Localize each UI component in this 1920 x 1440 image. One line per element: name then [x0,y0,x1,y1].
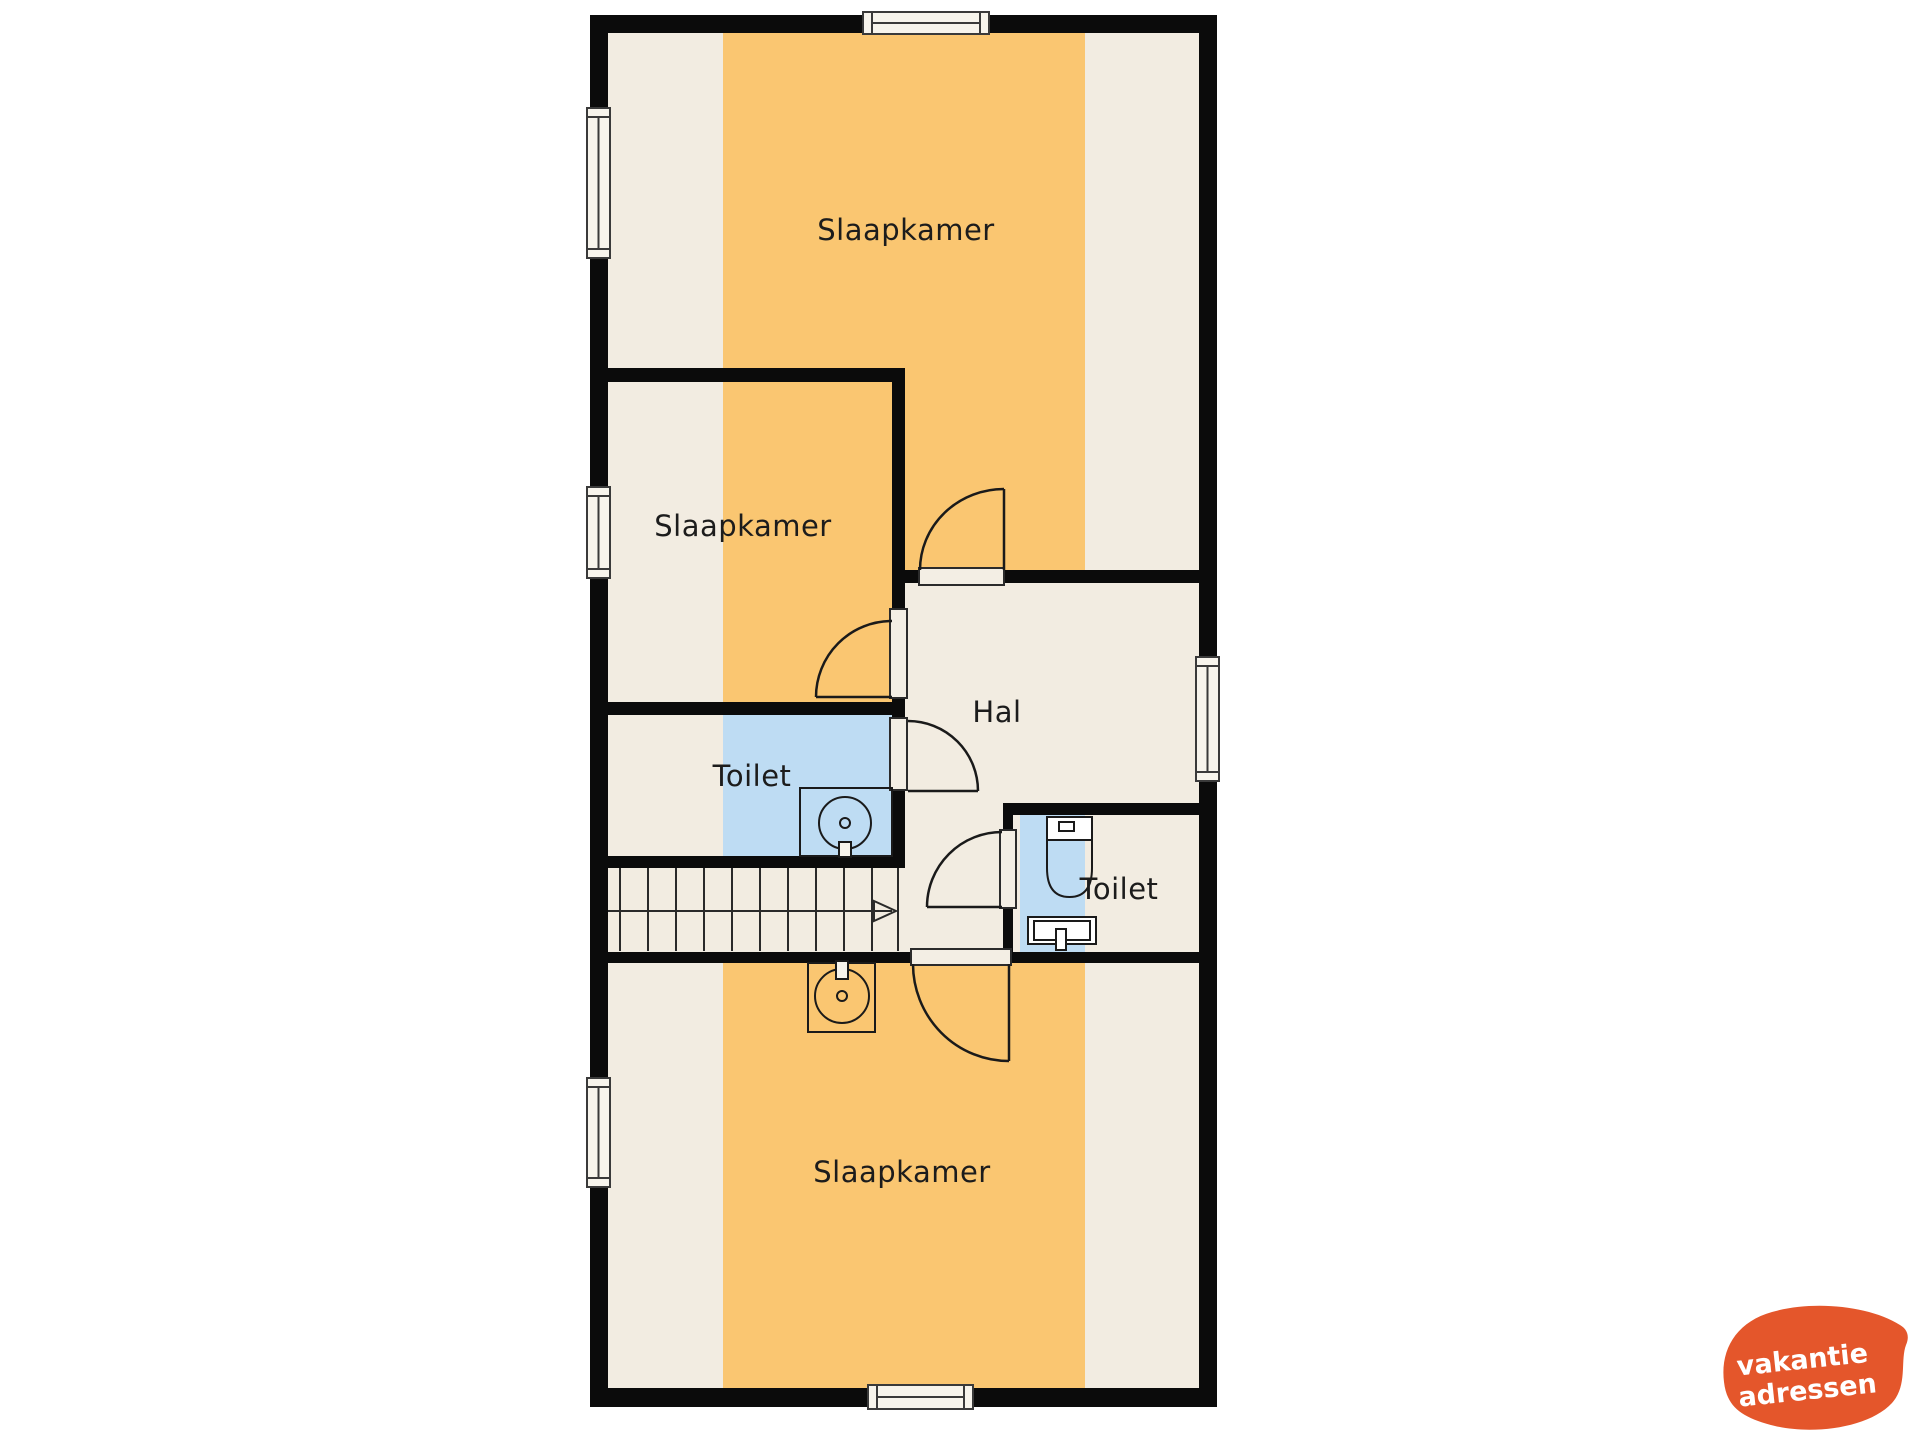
window-left-top [586,107,611,259]
vakantieadressen-logo: vakantie adressen [1714,1298,1914,1433]
room-label-toilet-right: Toilet [1080,872,1159,906]
window-right [1195,656,1220,782]
window-bottom [867,1384,974,1410]
doorframe-middle-bedroom [889,608,908,699]
doorframe-stairs [999,829,1017,909]
doorframe-top-bedroom [918,567,1005,586]
room-label-slaapkamer-bottom: Slaapkamer [813,1155,991,1189]
window-left-bottom [586,1077,611,1188]
window-top [862,11,990,35]
wall-bottom-bedroom-top [590,952,1199,963]
wall-middle-bedroom-top [590,368,905,382]
room-label-slaapkamer-middle: Slaapkamer [654,509,832,543]
wall-hal-bottom [1007,803,1199,815]
toilet-right-blue-area [1020,815,1085,952]
wall-toilet-left-bottom [590,856,905,868]
room-label-hal: Hal [972,695,1021,729]
room-label-toilet-left: Toilet [713,759,792,793]
window-left-middle [586,486,611,579]
wall-toilet-left-top [590,702,905,715]
doorframe-toilet-left [889,717,908,791]
bedroom-stripe-top [723,33,1085,370]
doorframe-bottom-bedroom [910,948,1012,966]
bedroom-stripe-top-lower [905,370,1085,572]
room-label-slaapkamer-top: Slaapkamer [817,213,995,247]
floorplan-canvas: Slaapkamer Slaapkamer Toilet Hal Toilet … [0,0,1920,1440]
